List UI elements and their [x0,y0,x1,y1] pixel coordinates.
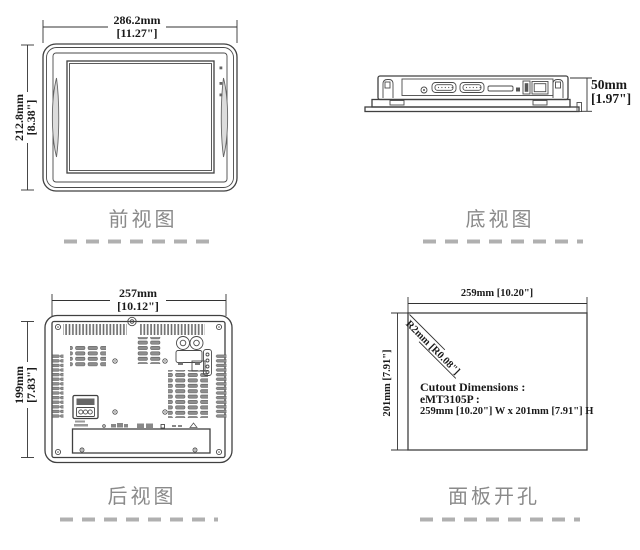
front-bezel-face [53,53,227,182]
speaker-assembly [176,337,212,376]
power-connector-label [77,399,95,406]
dimension-drawing: 286.2mm [11.27"] 212.8mm [8.38"] 前视图 [0,0,640,550]
depth-inch: [1.97"] [591,91,631,106]
audio-jack-pin [423,89,425,91]
panel-cutout-view: 259mm [10.20"] 201mm [7.91"] R2mm [R0.08… [382,288,593,520]
front-view-caption: 前视图 [109,208,178,231]
bottom-view: 50mm [1.97"] 底视图 [365,76,631,242]
rear-width-inch: [10.12"] [117,299,159,313]
rear-view: 257mm [10.12"] 199mm [7.83"] 后视图 [12,286,232,520]
depth-mm: 50mm [591,77,628,92]
led-icon [220,82,223,85]
rear-height-inch: [7.83"] [24,367,38,403]
front-height-inch: [8.38"] [24,100,38,136]
mid-screws [113,359,167,414]
cutout-height-label: 201mm [7.91"] [382,349,393,416]
rear-width-dimension: 257mm [10.12"] [52,286,226,316]
cutout-width-dimension: 259mm [10.20"] [408,288,587,313]
cutout-height-dimension: 201mm [7.91"] [382,313,408,450]
serial-port-icon [460,83,484,93]
depth-dimension: 50mm [1.97"] [570,77,631,111]
speaker-icon [177,337,190,350]
speaker-icon [190,337,203,350]
vent-grill [140,324,205,335]
dimension-drawing-canvas: 286.2mm [11.27"] 212.8mm [8.38"] 前视图 [0,0,640,550]
cutout-caption: 面板开孔 [448,485,540,508]
vent-grill [63,324,127,335]
screen-inner-line [70,64,212,171]
serial-port-icon [432,83,456,93]
front-glass-edge [365,107,579,112]
side-vent-fins [216,354,227,418]
front-inner-bezel-line [47,48,234,188]
front-height-dimension: 212.8mm [8.38"] [12,45,38,190]
clip-slot [533,101,547,106]
front-width-dimension: 286.2mm [11.27"] [43,13,237,43]
front-outer-bezel [43,44,237,191]
clip-notch [556,82,561,88]
sd-slot-icon [488,86,513,91]
front-view: 286.2mm [11.27"] 212.8mm [8.38"] 前视图 [12,13,237,242]
rear-width-mm: 257mm [119,286,157,300]
vent-slots [70,345,106,367]
cutout-note: Cutout Dimensions : eMT3105P : 259mm [10… [420,380,593,417]
power-connector [73,396,98,427]
corner-radius-label: R2mm [R0.08"] [403,319,462,378]
rear-height-dimension: 199mm [7.83"] [12,322,38,458]
ground-symbol-icon [190,423,197,428]
led-icon [220,67,223,70]
led-icon [220,94,223,97]
io-connectors [421,81,548,94]
clip-slot [390,101,404,106]
rear-view-caption: 后视图 [108,485,177,508]
screen-outline [67,61,214,173]
front-width-inch: [11.27"] [117,26,158,40]
bottom-recess-panel [73,429,211,453]
vent-slots [168,370,208,418]
ethernet-port-icon [532,82,548,95]
cutout-note-line1: Cutout Dimensions : [420,380,525,394]
cutout-note-line3: 259mm [10.20"] W x 201mm [7.91"] H [420,406,593,417]
corner-radius-callout: R2mm [R0.08"] [400,315,464,379]
cutout-note-line2: eMT3105P : [420,394,480,406]
rear-port-markings [103,423,197,428]
side-vent-fins [53,354,64,418]
cutout-width-label: 259mm [10.20"] [461,288,533,299]
dip-switch-icon [516,88,520,92]
usb-port-inner [525,83,529,92]
terminal-block [77,408,95,417]
vent-slots [136,337,162,364]
bottom-view-caption: 底视图 [466,208,535,231]
front-width-mm: 286.2mm [114,13,161,27]
clip-notch [385,82,390,88]
